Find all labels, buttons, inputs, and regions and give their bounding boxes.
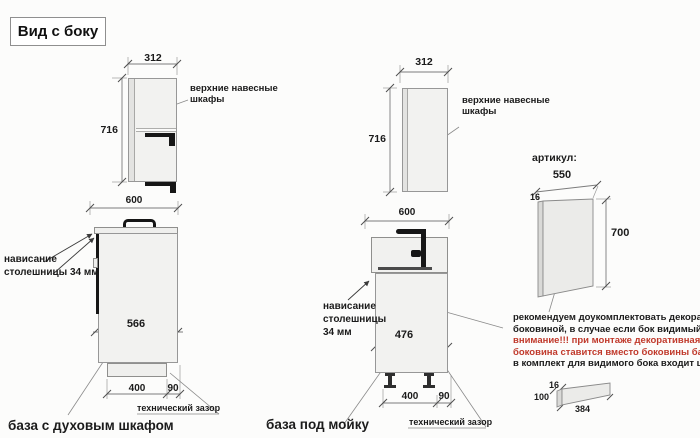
sink-overhang-label: нависание столешницы 34 мм [323,300,386,339]
oven-overhang-label: нависание столешницы 34 мм [4,254,99,279]
decorative-side-panel-shape [538,199,593,297]
plinth-thickness-dim: 16 [549,380,559,390]
oven-upper-cabinet-label: верхние навесные шкафы [190,83,278,105]
note-line-1: рекомендуем доукомплектовать декоративно… [513,312,699,324]
note-line-3-warning: внимание!!! при монтаже декоративная [513,335,699,347]
oven-base-width-dim: 600 [114,195,154,206]
sink-leg-right-foot [423,385,435,388]
oven-plinth-depth-dim: 400 [117,383,157,394]
panel-width-dim: 550 [546,169,578,181]
oven-body-depth-dim: 566 [114,318,158,330]
sink-upper-cabinet-body [402,88,448,192]
sink-gap-dim: 90 [431,391,457,402]
oven-base-cabinet-body [98,233,178,363]
note-line-4-warning: боковина ставится вместо боковины базы л… [513,347,699,359]
oven-gap-dim: 90 [159,383,187,394]
faucet-lever [411,250,421,257]
oven-upper-width-dim: 312 [130,52,176,64]
panel-thickness-dim: 16 [530,192,540,202]
oven-upper-gola-profile-top-drop [169,136,175,146]
sink-leg-left-stem [388,376,392,385]
sink-base-width-dim: 600 [385,207,429,218]
oven-unit-caption: база с духовым шкафом [8,418,174,433]
note-line-5: в комплект для видимого бока входит цоко… [513,358,699,370]
sink-upper-cabinet-side-edge [403,89,408,191]
sink-bowl-bottom [378,267,432,270]
sink-tech-gap-label: технический зазор [409,417,492,427]
sink-leg-left-foot [384,385,396,388]
article-heading: артикул: [532,152,577,164]
oven-tech-gap-label: технический зазор [137,403,220,413]
oven-upper-cabinet-side-edge [129,79,135,181]
oven-plinth [107,363,167,377]
decorative-panel-note: рекомендуем доукомплектовать декоративно… [513,312,699,370]
note-line-2: боковиной, в случае если бок видимый [513,324,699,336]
sink-leg-right-stem [427,376,431,385]
sink-plinth-depth-dim: 400 [390,391,430,402]
dimension-linework [0,0,700,438]
plinth-length-dim: 384 [575,404,590,414]
side-view-drawing: Вид с боку 312 716 верхние навесные шкаф… [0,0,700,438]
drawing-title: Вид с боку [10,17,106,46]
sink-upper-width-dim: 312 [401,56,447,68]
panel-height-dim: 700 [611,227,629,239]
plinth-height-dim: 100 [534,392,549,402]
faucet-riser [421,230,426,267]
sink-upper-cabinet-label: верхние навесные шкафы [462,95,550,117]
sink-unit-caption: база под мойку [266,417,369,432]
oven-upper-cabinet-shelf [136,128,176,132]
oven-upper-height-dim: 716 [92,124,118,136]
sink-body-depth-dim: 476 [382,329,426,341]
sink-upper-height-dim: 716 [360,133,386,145]
oven-upper-gola-profile-bottom-drop [170,185,176,193]
